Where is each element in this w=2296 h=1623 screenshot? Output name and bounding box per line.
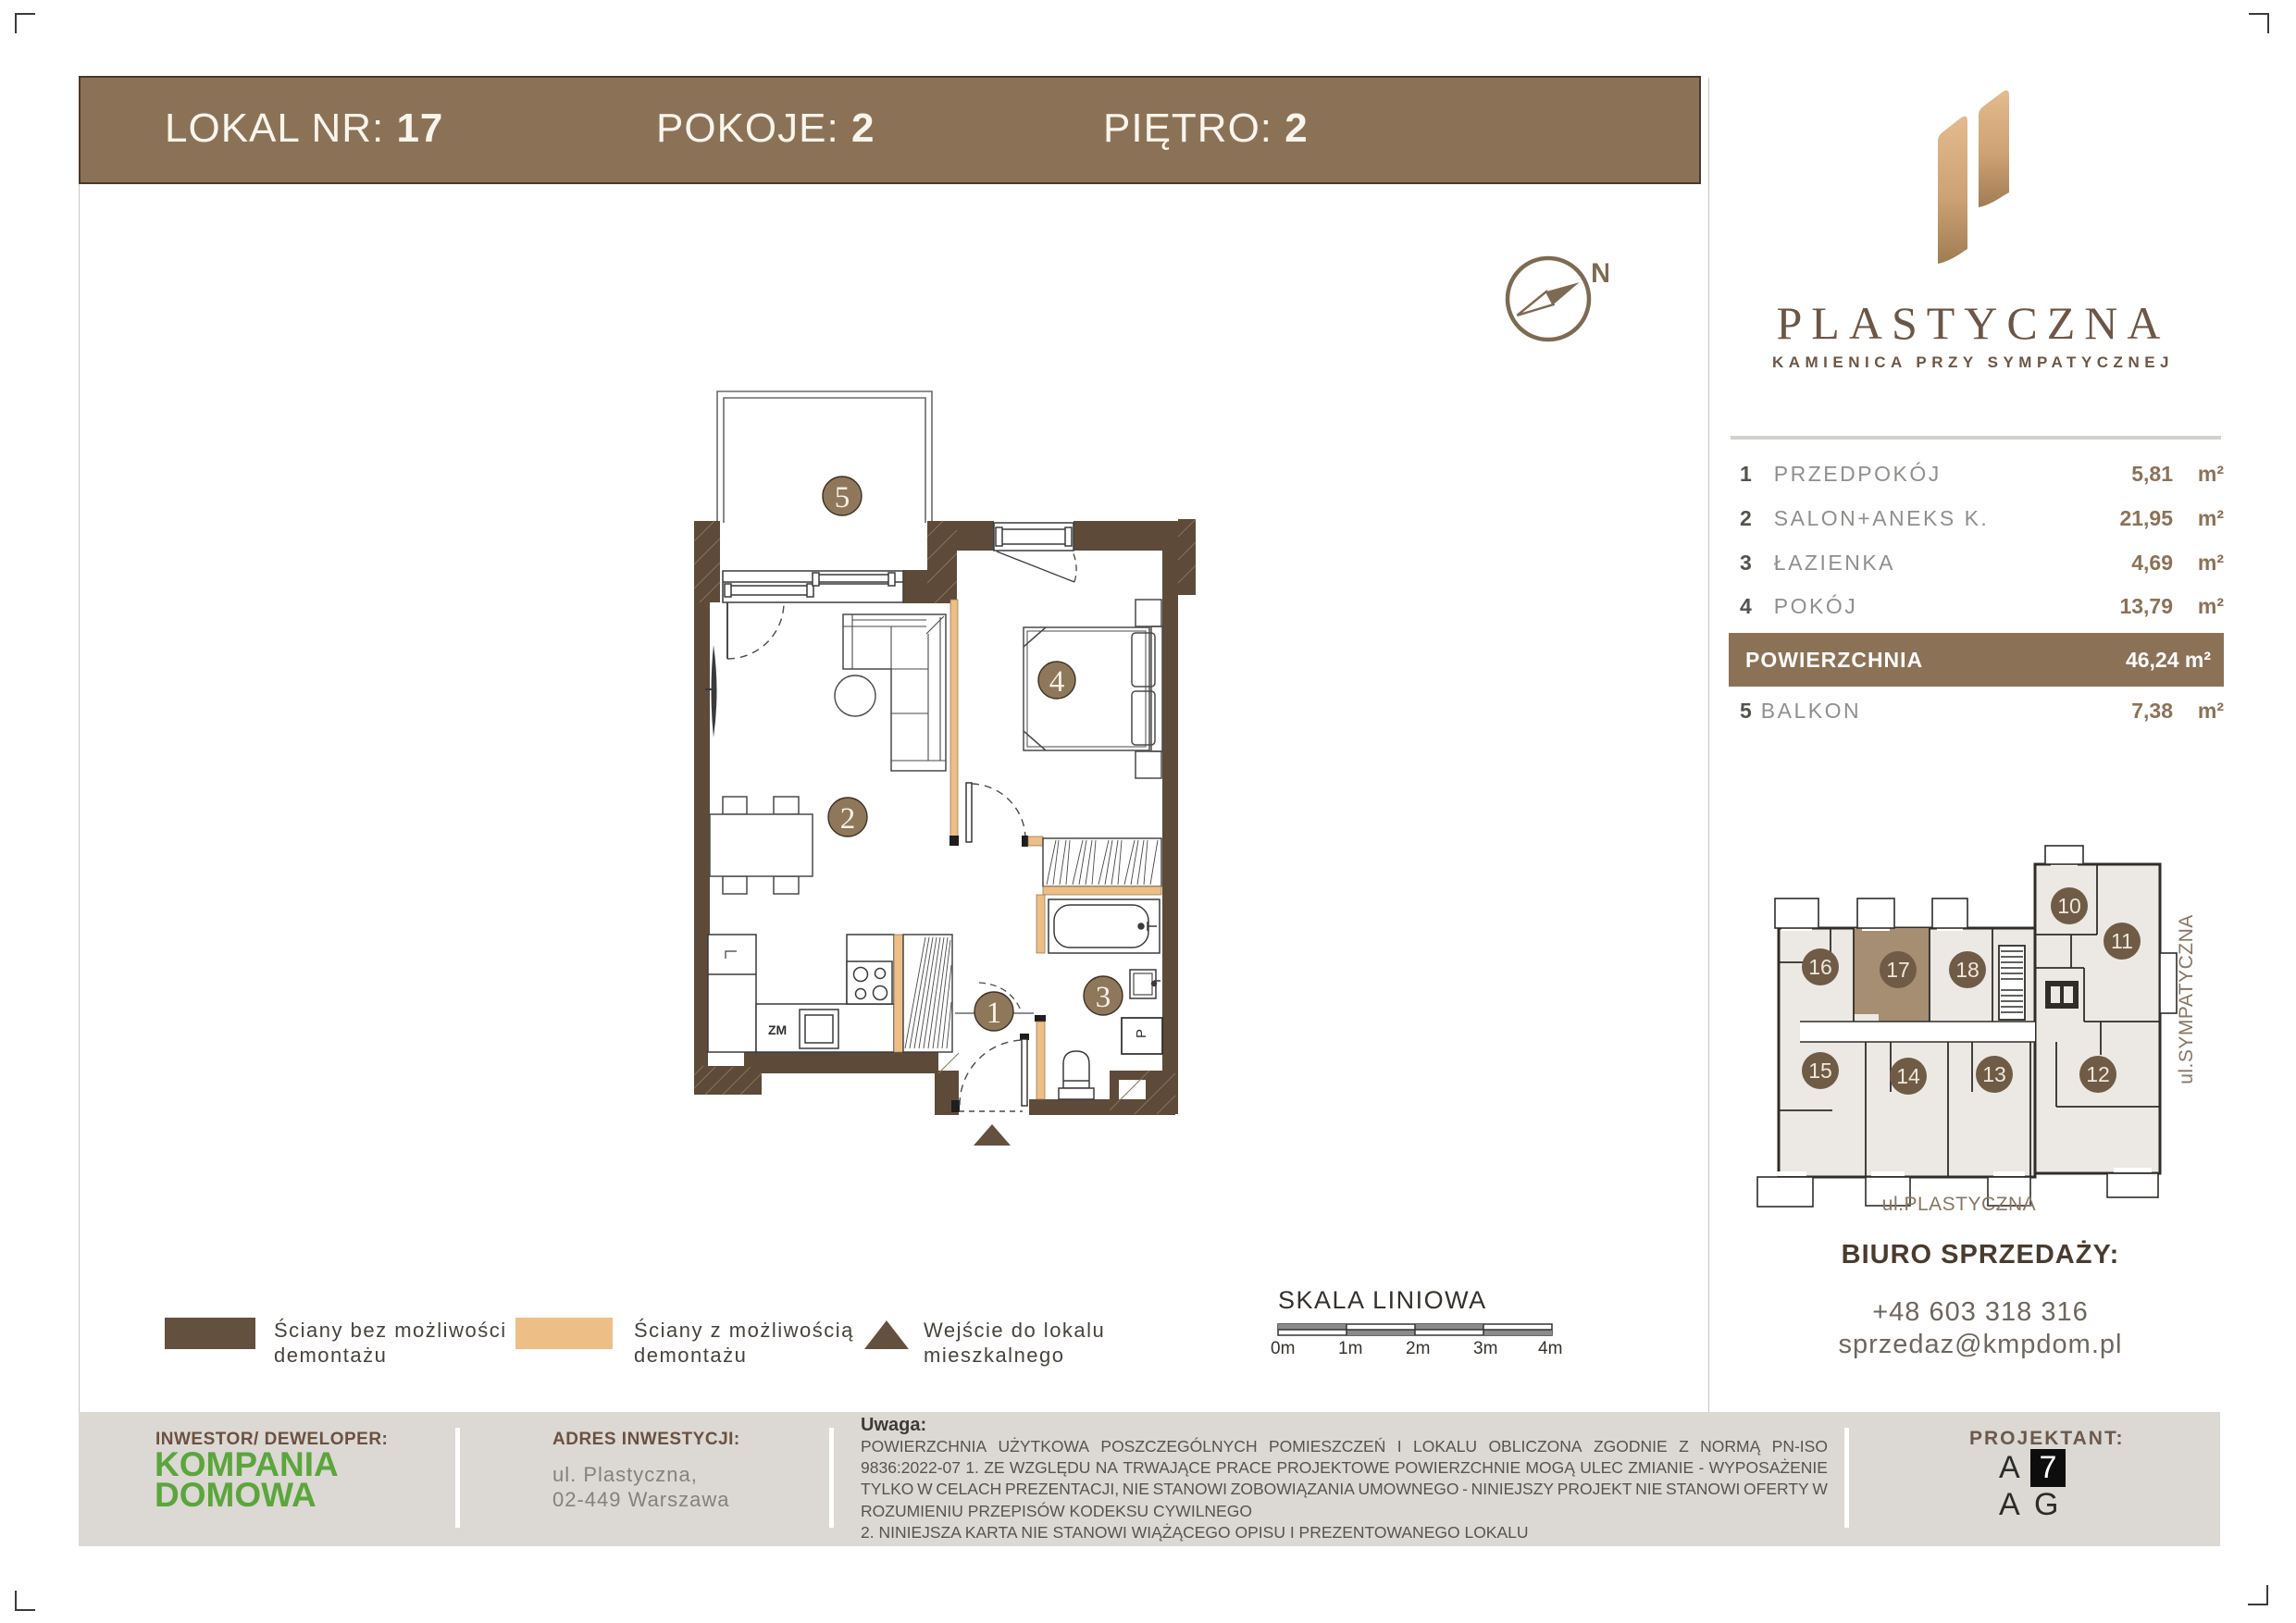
svg-text:16: 16 [1808, 955, 1832, 979]
svg-text:13: 13 [1982, 1062, 2006, 1086]
svg-text:P: P [1134, 1029, 1149, 1038]
svg-text:18: 18 [1955, 958, 1980, 982]
svg-text:17: 17 [1886, 958, 1910, 982]
svg-text:12: 12 [2086, 1062, 2110, 1086]
svg-text:5: 5 [835, 481, 850, 514]
svg-text:ul.PLASTYCZNA: ul.PLASTYCZNA [1882, 1194, 2036, 1215]
svg-text:11: 11 [2111, 929, 2133, 953]
svg-text:15: 15 [1808, 1059, 1832, 1083]
svg-text:4: 4 [1049, 665, 1065, 699]
svg-text:1: 1 [987, 997, 1002, 1030]
svg-text:14: 14 [1896, 1064, 1920, 1088]
svg-text:3: 3 [1096, 981, 1111, 1014]
svg-text:10: 10 [2057, 894, 2081, 918]
svg-text:N: N [1591, 258, 1608, 289]
svg-text:ul.SYMPATYCZNA: ul.SYMPATYCZNA [2176, 914, 2197, 1084]
svg-text:ZM: ZM [768, 1022, 787, 1037]
svg-text:2: 2 [840, 802, 856, 836]
